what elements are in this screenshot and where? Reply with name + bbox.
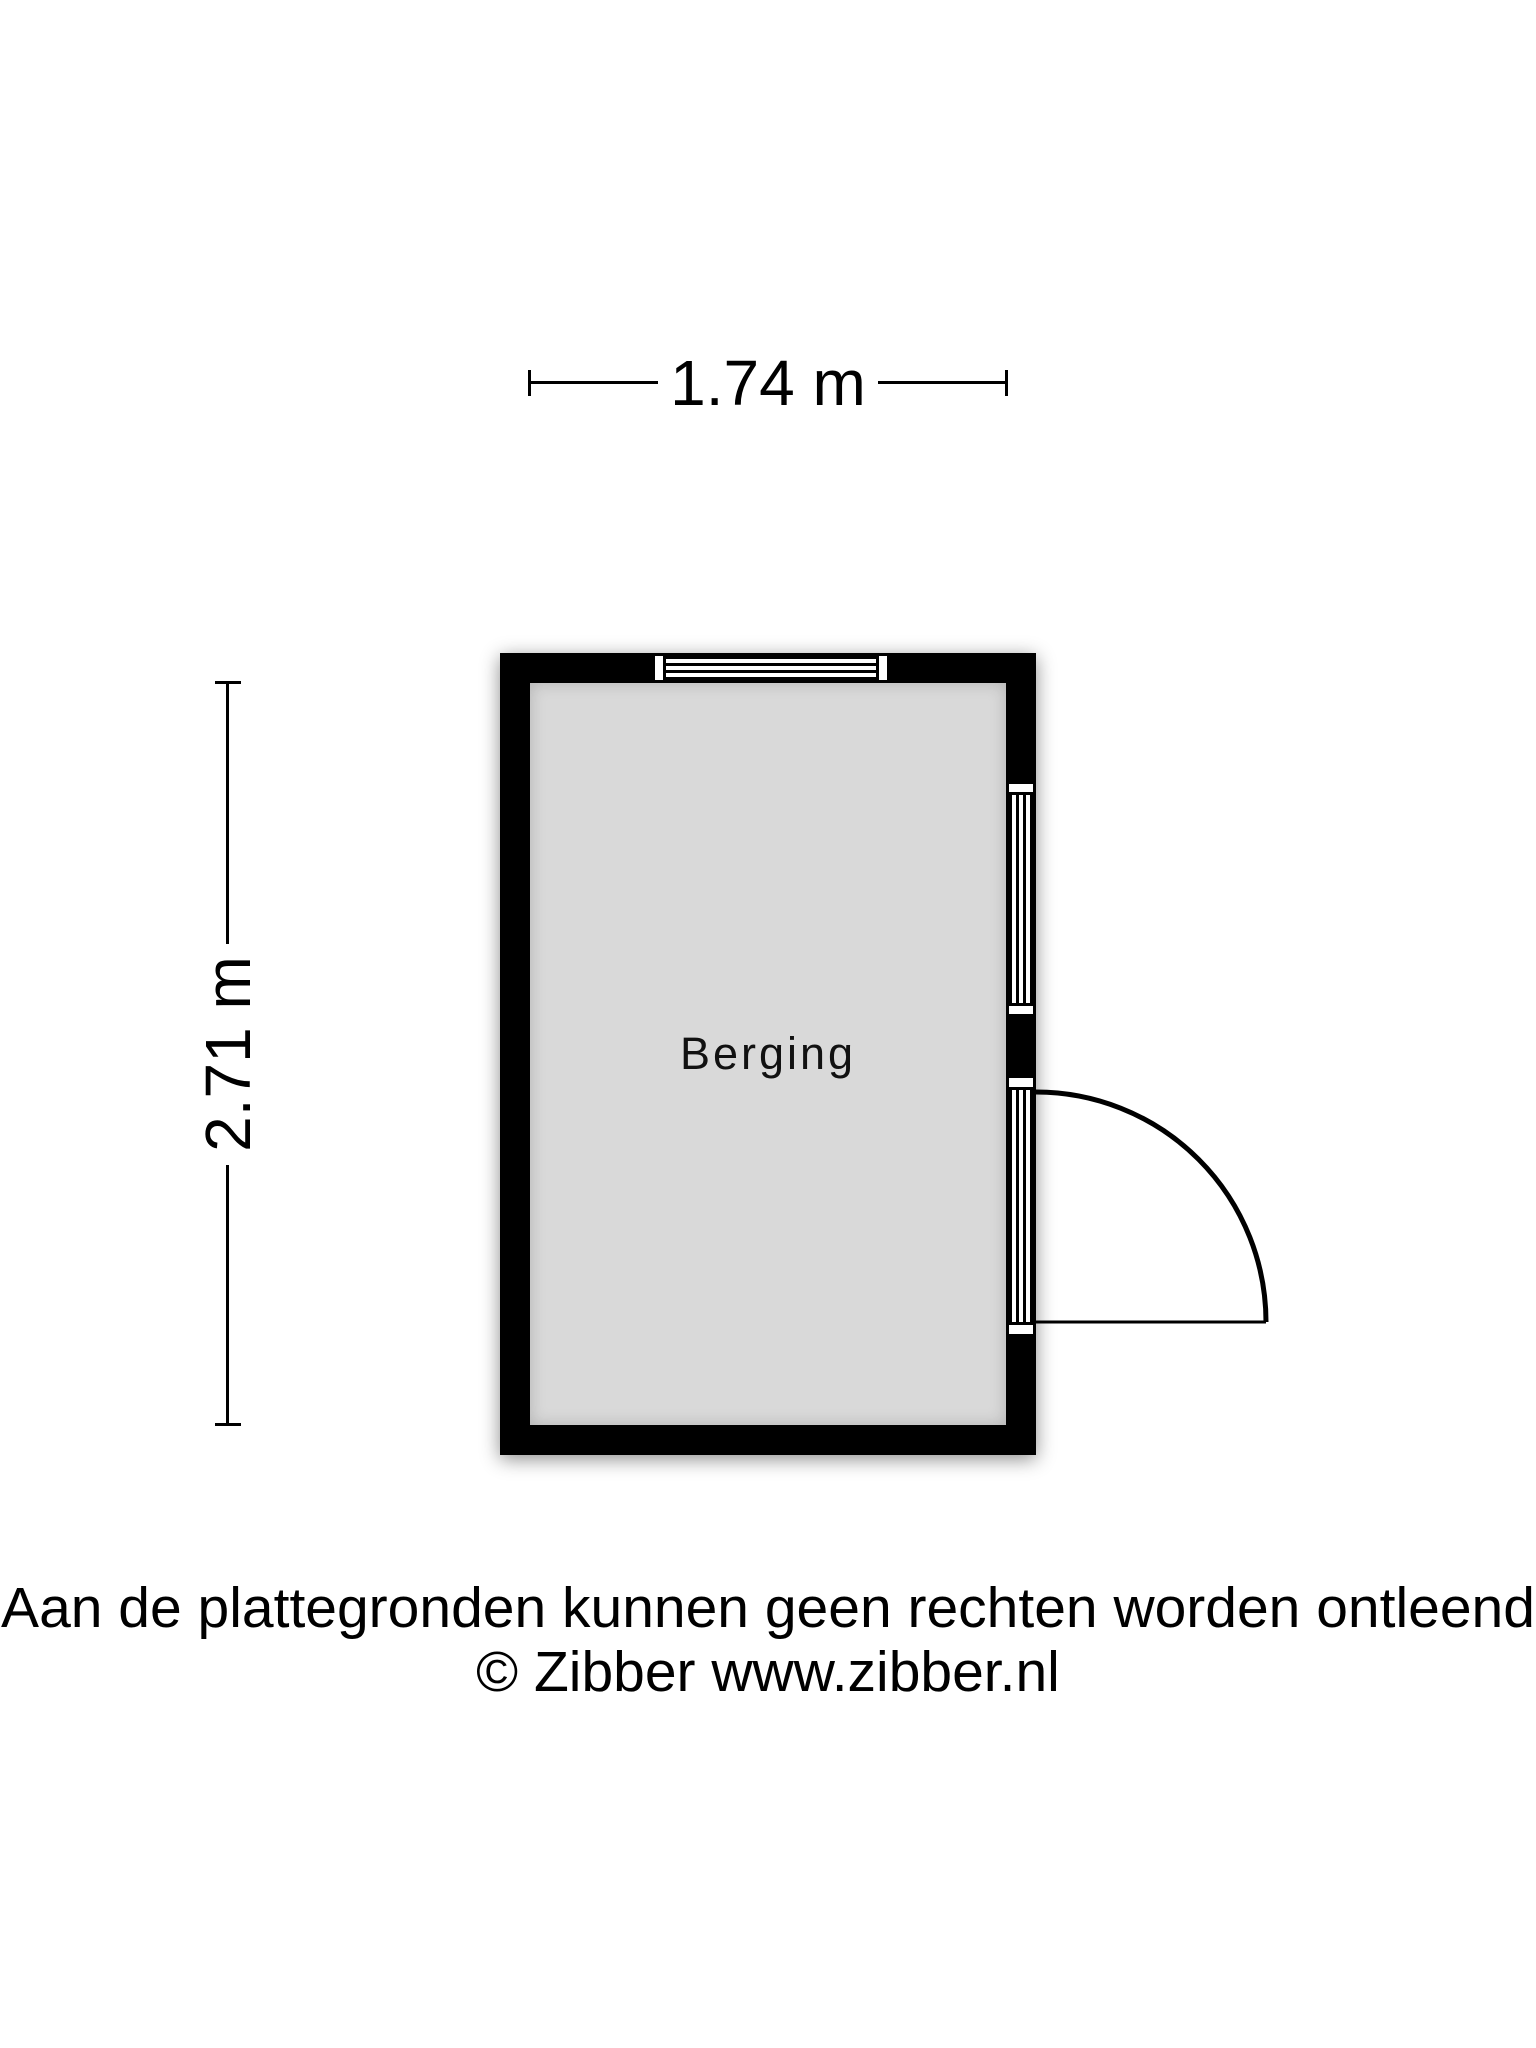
- window-symbol-right: [1006, 781, 1036, 1017]
- dimension-depth: 2.71 m: [215, 681, 241, 1426]
- dimension-tick: [1005, 370, 1008, 396]
- dimension-tick: [215, 1423, 241, 1426]
- dimension-line: [878, 381, 1005, 384]
- dimension-width: 1.74 m: [528, 370, 1008, 396]
- room-label: Berging: [680, 1028, 856, 1080]
- door-jamb: [1006, 1075, 1036, 1090]
- dimension-line: [226, 1165, 229, 1423]
- footer-disclaimer: Aan de plattegronden kunnen geen rechten…: [0, 1576, 1536, 1640]
- door-jamb: [1006, 1322, 1036, 1337]
- window-jamb: [652, 653, 666, 683]
- window-jamb: [876, 653, 890, 683]
- window-glazing: [1009, 795, 1033, 1003]
- window-symbol-top: [652, 653, 890, 683]
- footer-copyright: © Zibber www.zibber.nl: [0, 1640, 1536, 1704]
- footer: Aan de plattegronden kunnen geen rechten…: [0, 1576, 1536, 1704]
- dimension-line: [531, 381, 658, 384]
- room-floor: Berging: [530, 683, 1006, 1425]
- window-glazing: [666, 656, 876, 680]
- floorplan-canvas: 1.74 m 2.71 m Berging: [0, 0, 1536, 2048]
- window-jamb: [1006, 1003, 1036, 1017]
- window-jamb: [1006, 781, 1036, 795]
- door-symbol: [1006, 1075, 1036, 1337]
- door-glazing: [1009, 1090, 1033, 1322]
- dimension-depth-label: 2.71 m: [191, 950, 265, 1158]
- dimension-width-label: 1.74 m: [664, 346, 872, 420]
- door-swing-arc: [1034, 1088, 1276, 1330]
- room-outer-walls: Berging: [500, 653, 1036, 1455]
- dimension-line: [226, 684, 229, 944]
